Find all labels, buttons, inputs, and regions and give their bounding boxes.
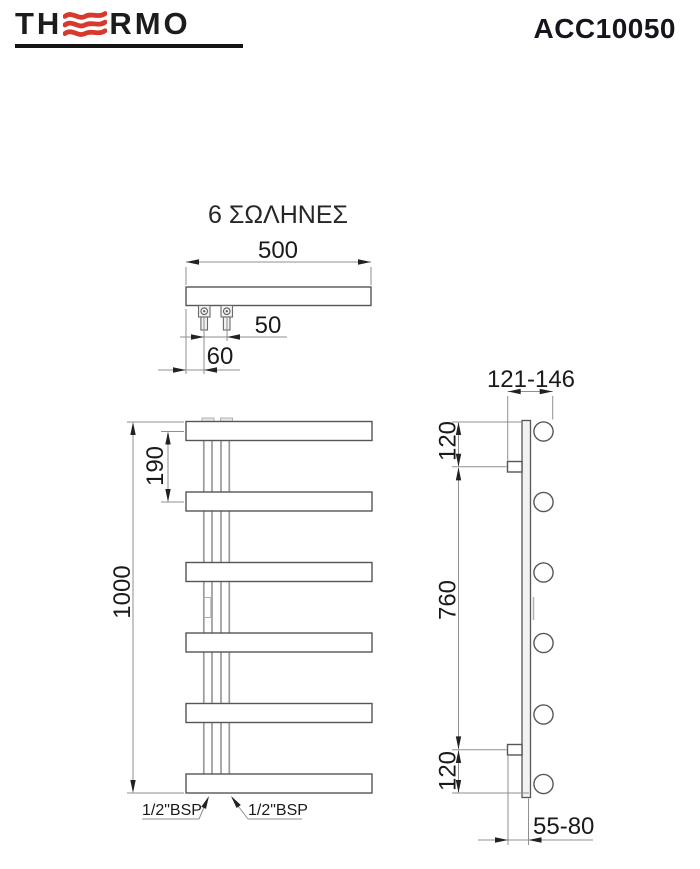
side-panel xyxy=(522,421,531,798)
dim-bracket-span-760: 760 xyxy=(435,467,462,749)
dim-wall-clearance: 55-80 xyxy=(478,756,594,845)
dim-bottom-offset-label: 120 xyxy=(435,751,462,791)
dim-width-500: 500 xyxy=(186,237,371,285)
bsp-leader-right: 1/2"BSP xyxy=(231,796,308,819)
dim-width-label: 500 xyxy=(258,237,298,264)
technical-drawing: 6 ΣΩΛΗΝΕΣ 500 xyxy=(0,0,700,869)
page: { "header": { "logo_part1": "TH", "logo_… xyxy=(0,0,700,869)
tube-6 xyxy=(186,774,372,793)
dim-edge-offset-label: 60 xyxy=(207,343,234,370)
dim-wall-clearance-label: 55-80 xyxy=(533,813,594,840)
dim-bracket-span-label: 760 xyxy=(435,580,462,620)
drawing-title: 6 ΣΩΛΗΝΕΣ xyxy=(208,201,348,229)
tube-2 xyxy=(186,492,372,511)
tube-end-circles xyxy=(534,422,553,794)
dim-bottom-offset-120: 120 xyxy=(435,750,530,793)
tube-end-4 xyxy=(534,633,553,652)
tube-end-1 xyxy=(534,422,553,441)
bsp-right-label: 1/2"BSP xyxy=(248,802,308,819)
tube-4 xyxy=(186,633,372,652)
dim-wall-to-tube-label: 121-146 xyxy=(487,366,575,393)
wall-bracket-bottom xyxy=(508,745,523,756)
tube-end-6 xyxy=(534,774,553,793)
tube-end-3 xyxy=(534,563,553,582)
wall-bracket-top xyxy=(508,462,523,473)
top-view: 500 50 xyxy=(158,237,371,374)
tube-3 xyxy=(186,563,372,582)
tube-end-5 xyxy=(534,705,553,724)
bsp-left-label: 1/2"BSP xyxy=(142,802,202,819)
tube-5 xyxy=(186,704,372,723)
dim-tube-pitch-label: 190 xyxy=(142,446,169,486)
dim-tube-pitch-190: 190 xyxy=(142,432,184,503)
front-view: 1000 190 1/2"BSP 1/2"BSP xyxy=(109,418,372,819)
pipe-junction-detail xyxy=(204,598,211,618)
radiator-tubes xyxy=(186,422,372,794)
top-view-body xyxy=(186,287,371,306)
dim-top-offset-label: 120 xyxy=(435,421,462,461)
dim-height-label: 1000 xyxy=(109,565,136,618)
bsp-leader-left: 1/2"BSP xyxy=(142,796,209,819)
tube-end-2 xyxy=(534,492,553,511)
dim-pipe-spacing-label: 50 xyxy=(255,312,282,339)
side-view: 121-146 120 xyxy=(435,366,595,845)
tube-1 xyxy=(186,422,372,441)
dim-pipe-spacing-50: 50 xyxy=(180,312,287,374)
